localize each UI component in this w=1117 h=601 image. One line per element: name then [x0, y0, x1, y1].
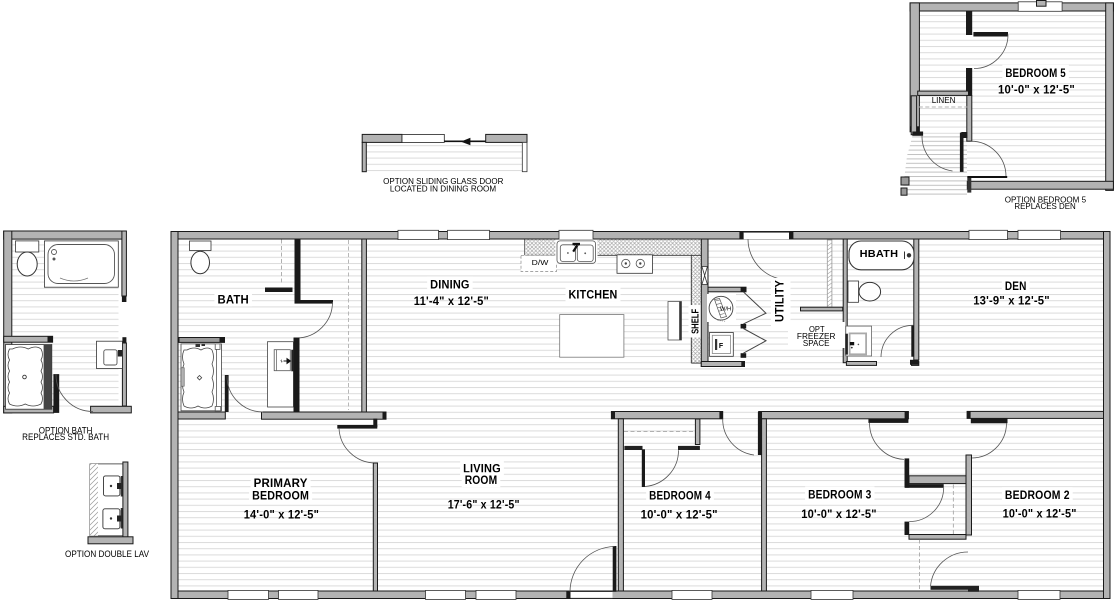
svg-text:10'-0" x 12'-5": 10'-0" x 12'-5"	[641, 509, 718, 521]
svg-text:BEDROOM: BEDROOM	[252, 491, 309, 503]
svg-text:DEN: DEN	[1005, 281, 1027, 293]
svg-text:SPACE: SPACE	[803, 338, 830, 348]
svg-text:KITCHEN: KITCHEN	[569, 290, 618, 302]
svg-text:ROOM: ROOM	[465, 475, 498, 487]
svg-text:13'-9" x 12'-5": 13'-9" x 12'-5"	[973, 296, 1050, 308]
svg-text:BATH: BATH	[217, 295, 249, 307]
svg-text:10'-0" x 12'-5": 10'-0" x 12'-5"	[801, 509, 876, 521]
svg-text:F: F	[719, 343, 724, 350]
svg-text:10'-0" x 12'-5": 10'-0" x 12'-5"	[1003, 508, 1077, 520]
svg-text:UTILITY: UTILITY	[773, 280, 787, 322]
svg-text:BEDROOM 3: BEDROOM 3	[808, 490, 871, 502]
svg-text:HBATH: HBATH	[860, 248, 899, 260]
svg-text:OPTION DOUBLE LAV: OPTION DOUBLE LAV	[65, 549, 149, 559]
svg-text:DINING: DINING	[430, 280, 470, 292]
svg-text:17'-6" x 12'-5": 17'-6" x 12'-5"	[448, 499, 520, 511]
svg-text:W/H: W/H	[720, 307, 731, 313]
svg-text:BEDROOM 4: BEDROOM 4	[649, 491, 711, 503]
svg-text:BEDROOM 2: BEDROOM 2	[1005, 490, 1070, 502]
svg-text:LINEN: LINEN	[932, 95, 956, 105]
svg-text:SHELF: SHELF	[691, 309, 702, 334]
svg-text:10'-0" x 12'-5": 10'-0" x 12'-5"	[998, 84, 1075, 96]
svg-text:14'-0" x 12'-5": 14'-0" x 12'-5"	[244, 509, 319, 521]
svg-text:11'-4" x 12'-5": 11'-4" x 12'-5"	[414, 296, 489, 308]
svg-text:LOCATED IN DINING ROOM: LOCATED IN DINING ROOM	[390, 184, 496, 194]
svg-text:BEDROOM 5: BEDROOM 5	[1005, 68, 1066, 80]
svg-text:REPLACES DEN: REPLACES DEN	[1014, 201, 1075, 211]
svg-text:REPLACES STD. BATH: REPLACES STD. BATH	[22, 432, 109, 442]
svg-text:D/W: D/W	[532, 260, 549, 267]
